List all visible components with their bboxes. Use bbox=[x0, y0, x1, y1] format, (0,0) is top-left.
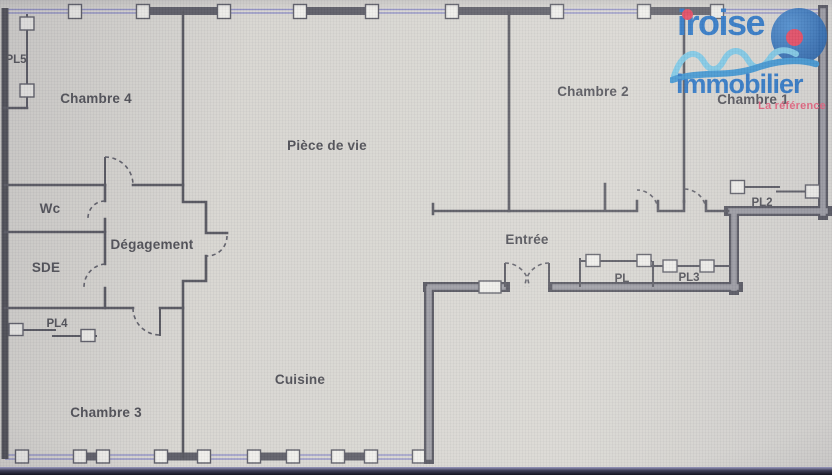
logo-brand-name: iroise bbox=[677, 2, 764, 44]
label-chambre-2: Chambre 2 bbox=[557, 84, 629, 99]
label-pl5: PL5 bbox=[5, 54, 27, 66]
door-arc-chambre3 bbox=[133, 308, 160, 335]
door-arc-degagement bbox=[207, 236, 227, 256]
label-entree: Entrée bbox=[505, 232, 549, 247]
entry-door-leaves bbox=[505, 263, 549, 287]
window-symbols bbox=[16, 5, 724, 464]
label-pl2: PL2 bbox=[751, 197, 772, 209]
entry-wall-window bbox=[479, 281, 501, 293]
label-pl4: PL4 bbox=[46, 318, 68, 330]
label-chambre-3: Chambre 3 bbox=[70, 405, 142, 420]
logo-brand-name-2: immobilier bbox=[676, 69, 803, 100]
door-arc-wc bbox=[88, 201, 105, 218]
label-wc: Wc bbox=[40, 201, 61, 216]
floor-plan-photo: Chambre 4 Pièce de vie Chambre 2 Chambre… bbox=[0, 0, 832, 475]
interior-walls bbox=[4, 12, 728, 457]
logo-i-red-dot-icon bbox=[682, 9, 693, 20]
label-degagement: Dégagement bbox=[110, 237, 193, 252]
label-cuisine: Cuisine bbox=[275, 372, 325, 387]
label-pl3: PL3 bbox=[678, 272, 699, 284]
label-sde: SDE bbox=[32, 260, 60, 275]
label-pl: PL bbox=[615, 273, 630, 285]
photo-bottom-edge bbox=[0, 467, 832, 475]
agency-logo: iroise immobilier La référence bbox=[640, 0, 832, 130]
door-arc-chambre4 bbox=[105, 157, 133, 185]
logo-tagline: La référence bbox=[758, 100, 826, 112]
door-arc-sde bbox=[84, 264, 105, 287]
label-piece-de-vie: Pièce de vie bbox=[287, 138, 367, 153]
label-chambre-4: Chambre 4 bbox=[60, 91, 132, 106]
door-arc-chambre1 bbox=[684, 189, 706, 211]
door-arc-chambre2 bbox=[637, 190, 658, 211]
